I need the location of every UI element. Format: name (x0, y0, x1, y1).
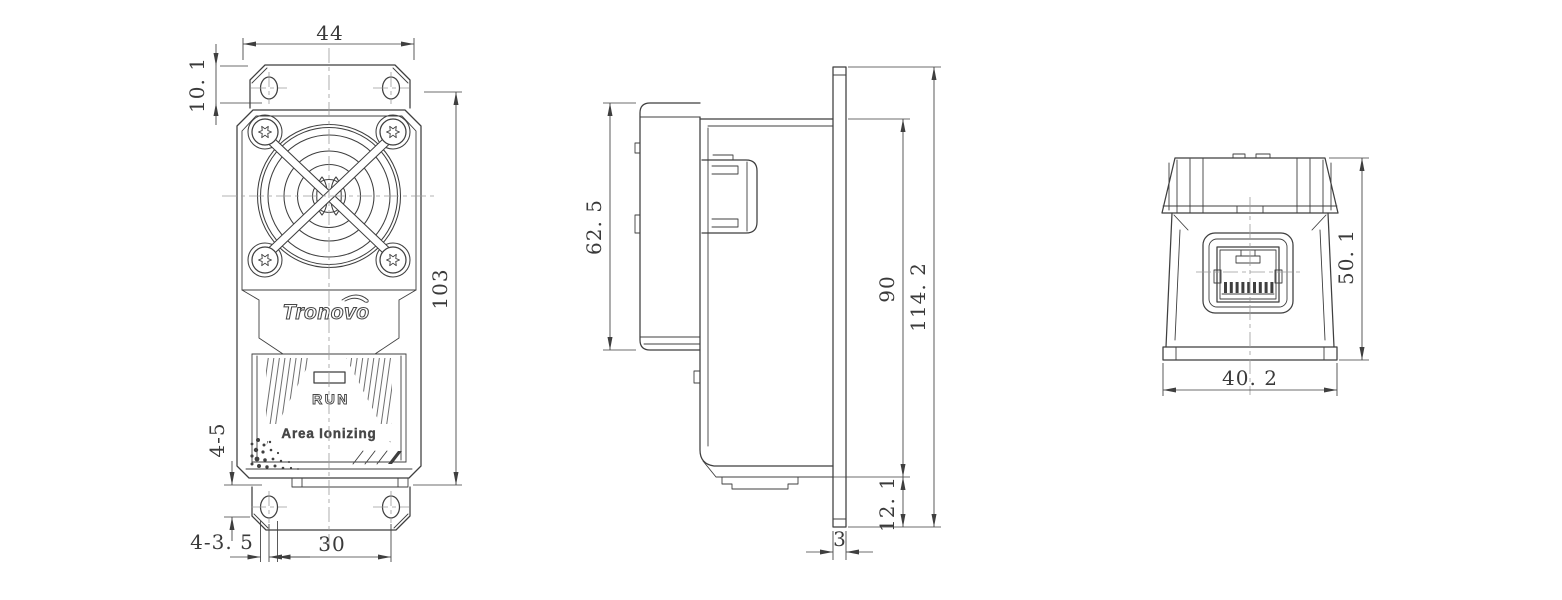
stipple-dots (250, 438, 299, 470)
run-label: RUN (312, 391, 350, 407)
front-housing (694, 117, 833, 477)
dim-flange-width: 44 (316, 21, 343, 45)
side-view-dimensions: 62. 5 90 12. 1 114. 2 3 (582, 67, 941, 560)
dim-slot-spacing: 30 (318, 532, 345, 556)
dim-overall-height: 114. 2 (906, 262, 930, 332)
connector-boss (702, 155, 757, 233)
technical-drawing-canvas: Tronovo RUN Area Ionizing (0, 0, 1562, 600)
led-window (314, 372, 345, 383)
dim-connector-height: 50. 1 (1334, 229, 1358, 285)
rj45-key-tab (1241, 250, 1255, 256)
top-mounting-flange (250, 65, 410, 108)
dim-body-height: 103 (428, 268, 452, 309)
dim-bottom-offset: 12. 1 (875, 476, 899, 532)
dim-plate-thickness: 3 (833, 527, 847, 551)
rear-view: 50. 1 40. 2 (1162, 154, 1369, 396)
dim-slot-width: 4-3. 5 (190, 530, 254, 554)
dim-panel-height: 90 (875, 275, 899, 302)
rear-housing (635, 103, 700, 350)
dim-rear-depth: 62. 5 (582, 199, 606, 255)
rj45-port (1203, 233, 1293, 313)
bottom-mounting-flange (251, 478, 410, 530)
technical-drawing-page: Tronovo RUN Area Ionizing (0, 0, 1562, 600)
brand-logo: Tronovo (282, 301, 369, 324)
dim-flange-offset: 10. 1 (185, 57, 209, 113)
dim-connector-width: 40. 2 (1222, 366, 1278, 390)
mounting-plate (833, 67, 846, 527)
side-view: 62. 5 90 12. 1 114. 2 3 (582, 67, 941, 560)
bottom-bracket (722, 477, 798, 489)
rj45-pins (1224, 282, 1273, 293)
dim-slot-length: 4-5 (205, 422, 229, 457)
front-view: Tronovo RUN Area Ionizing (185, 21, 462, 562)
